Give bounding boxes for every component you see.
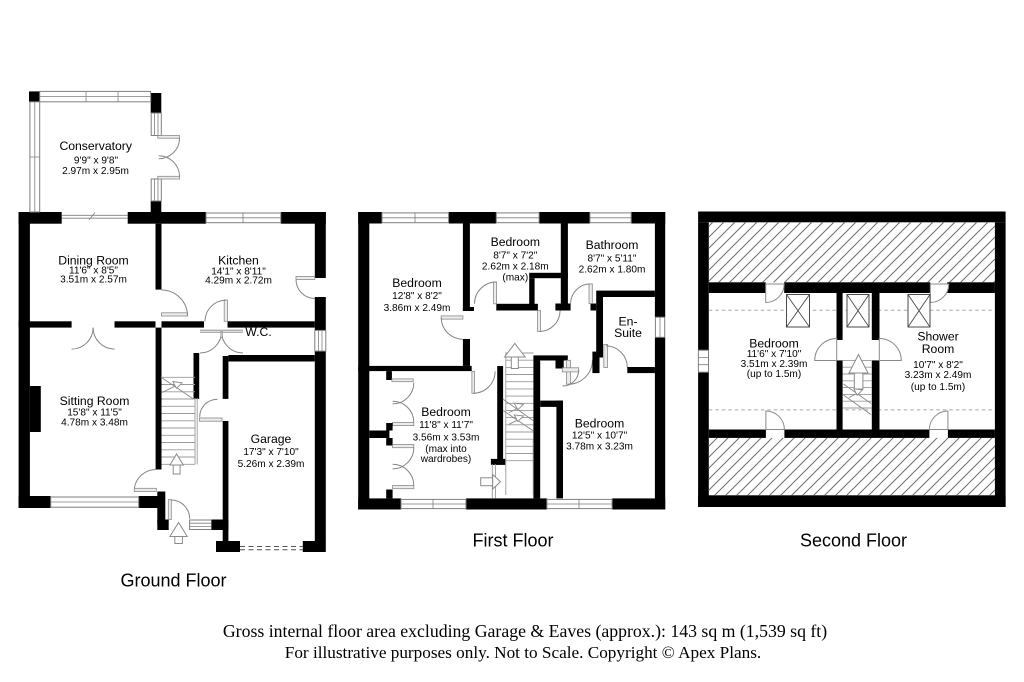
svg-text:8'7" x 7'2": 8'7" x 7'2"	[493, 251, 538, 262]
svg-text:2.97m x 2.95m: 2.97m x 2.95m	[62, 166, 129, 177]
svg-text:Kitchen: Kitchen	[218, 253, 259, 267]
svg-text:Bathroom: Bathroom	[586, 238, 639, 252]
svg-text:wardrobes): wardrobes)	[420, 454, 472, 465]
svg-text:3.51m x 2.57m: 3.51m x 2.57m	[60, 274, 127, 285]
svg-text:17'3" x 7'10": 17'3" x 7'10"	[243, 447, 299, 458]
svg-text:3.78m x 3.23m: 3.78m x 3.23m	[566, 442, 633, 453]
svg-text:2.62m x 2.18m: 2.62m x 2.18m	[482, 262, 549, 273]
svg-text:Bedroom: Bedroom	[421, 405, 470, 419]
svg-text:Garage: Garage	[251, 432, 292, 446]
svg-text:(up to 1.5m): (up to 1.5m)	[747, 369, 801, 380]
svg-text:4.78m x 3.48m: 4.78m x 3.48m	[61, 417, 128, 428]
svg-text:Sitting Room: Sitting Room	[60, 394, 130, 408]
svg-text:11'8" x 11'7": 11'8" x 11'7"	[419, 420, 473, 431]
svg-text:Ground Floor: Ground Floor	[120, 571, 226, 591]
svg-text:Bedroom: Bedroom	[575, 417, 624, 431]
svg-text:(max): (max)	[502, 273, 528, 284]
svg-text:8'7" x 5'11": 8'7" x 5'11"	[588, 254, 637, 265]
svg-text:(up to 1.5m): (up to 1.5m)	[911, 382, 965, 393]
svg-text:3.23m x 2.49m: 3.23m x 2.49m	[905, 370, 972, 381]
svg-text:For illustrative purposes only: For illustrative purposes only. Not to S…	[285, 643, 761, 662]
svg-text:W.C.: W.C.	[245, 325, 271, 339]
svg-text:4.29m x 2.72m: 4.29m x 2.72m	[205, 275, 272, 286]
svg-text:Room: Room	[922, 342, 955, 356]
svg-text:3.56m x 3.53m: 3.56m x 3.53m	[413, 433, 480, 444]
svg-text:First Floor: First Floor	[473, 531, 554, 551]
svg-text:2.62m x 1.80m: 2.62m x 1.80m	[579, 265, 646, 276]
svg-text:3.86m x 2.49m: 3.86m x 2.49m	[384, 303, 451, 314]
svg-text:Bedroom: Bedroom	[491, 235, 540, 249]
svg-text:Bedroom: Bedroom	[392, 276, 441, 290]
svg-text:Gross internal floor area excl: Gross internal floor area excluding Gara…	[223, 621, 827, 641]
svg-text:12'5" x 10'7": 12'5" x 10'7"	[572, 431, 628, 442]
svg-text:9'9" x 9'8": 9'9" x 9'8"	[74, 155, 119, 166]
svg-text:Suite: Suite	[614, 326, 642, 340]
svg-text:Second Floor: Second Floor	[800, 531, 907, 551]
svg-text:Conservatory: Conservatory	[59, 139, 132, 153]
svg-text:12'8" x 8'2": 12'8" x 8'2"	[392, 291, 442, 302]
svg-text:5.26m x 2.39m: 5.26m x 2.39m	[238, 459, 305, 470]
